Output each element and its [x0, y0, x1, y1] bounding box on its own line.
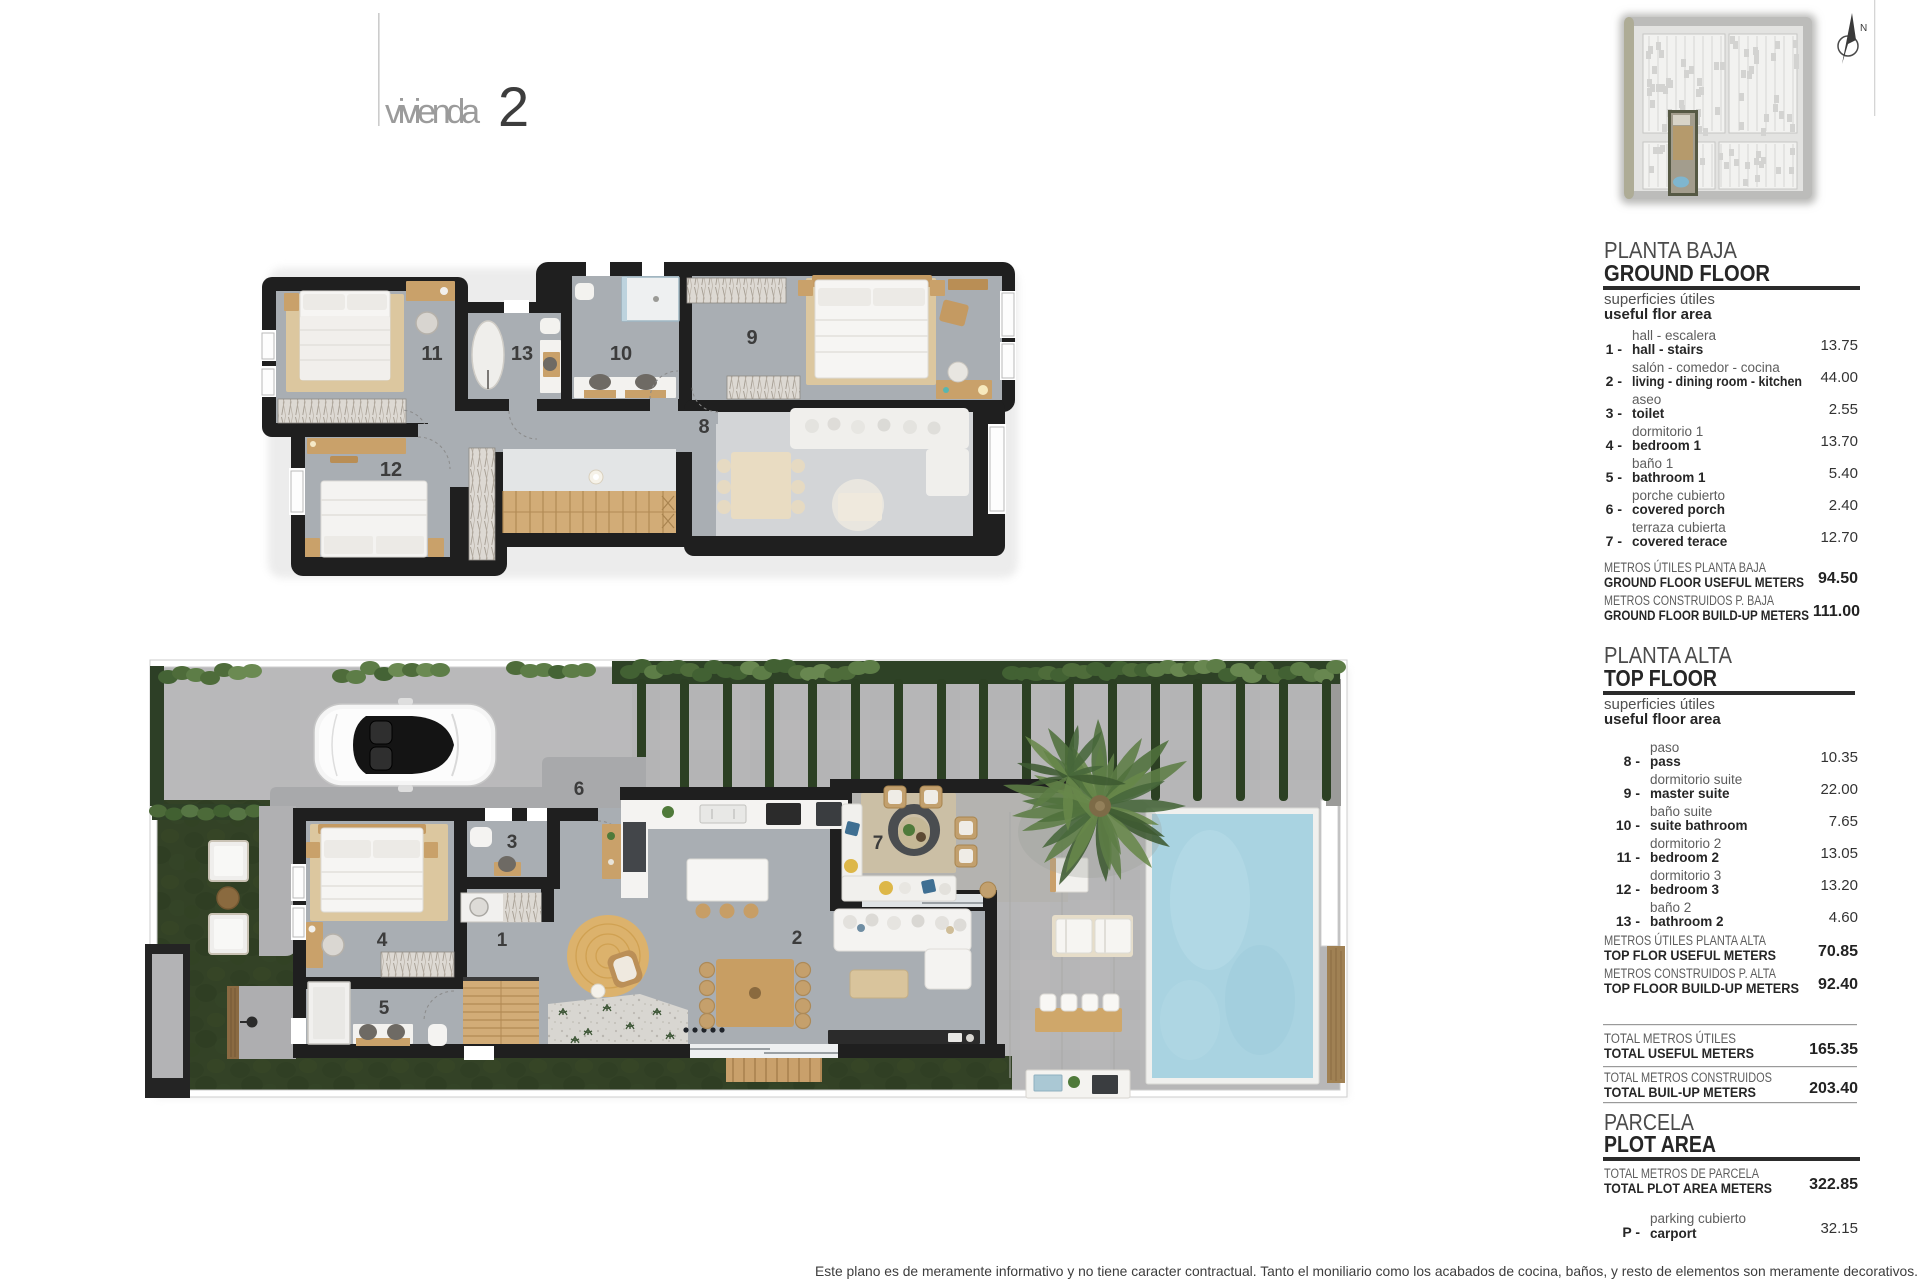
svg-text:5 -: 5 -	[1606, 469, 1623, 485]
svg-text:13.05: 13.05	[1820, 845, 1858, 862]
svg-text:METROS CONSTRUIDOS P. BAJA: METROS CONSTRUIDOS P. BAJA	[1604, 593, 1774, 608]
svg-text:dormitorio 1: dormitorio 1	[1632, 424, 1703, 439]
svg-text:92.40: 92.40	[1818, 976, 1858, 993]
svg-text:METROS ÚTILES PLANTA BAJA: METROS ÚTILES PLANTA BAJA	[1604, 560, 1766, 575]
svg-text:165.35: 165.35	[1809, 1041, 1858, 1058]
svg-text:10: 10	[610, 343, 632, 365]
svg-text:TOTAL BUIL-UP METERS: TOTAL BUIL-UP METERS	[1604, 1085, 1756, 1100]
svg-text:94.50: 94.50	[1818, 570, 1858, 587]
svg-text:13.20: 13.20	[1820, 877, 1858, 894]
svg-text:dormitorio suite: dormitorio suite	[1650, 772, 1742, 787]
svg-text:44.00: 44.00	[1820, 369, 1858, 386]
svg-text:6: 6	[574, 779, 585, 800]
svg-text:TOTAL PLOT AREA METERS: TOTAL PLOT AREA METERS	[1604, 1181, 1772, 1196]
svg-text:terraza cubierta: terraza cubierta	[1632, 520, 1726, 535]
svg-text:useful floor area: useful floor area	[1604, 711, 1721, 728]
svg-text:1: 1	[497, 930, 508, 951]
svg-text:TOTAL METROS DE PARCELA: TOTAL METROS DE PARCELA	[1604, 1166, 1759, 1181]
svg-text:12.70: 12.70	[1820, 529, 1858, 546]
svg-text:13.70: 13.70	[1820, 433, 1858, 450]
svg-text:baño 1: baño 1	[1632, 456, 1673, 471]
svg-text:living - dining room - kitchen: living - dining room - kitchen	[1632, 374, 1802, 389]
svg-text:4.60: 4.60	[1829, 909, 1858, 926]
svg-text:2: 2	[498, 75, 529, 138]
svg-text:bedroom 1: bedroom 1	[1632, 438, 1702, 453]
svg-text:baño 2: baño 2	[1650, 900, 1691, 915]
svg-text:13 -: 13 -	[1616, 913, 1640, 929]
svg-text:TOTAL METROS CONSTRUIDOS: TOTAL METROS CONSTRUIDOS	[1604, 1070, 1772, 1085]
svg-text:toilet: toilet	[1632, 406, 1665, 421]
svg-text:2: 2	[792, 928, 803, 949]
svg-text:TOP FLOOR: TOP FLOOR	[1604, 665, 1717, 691]
svg-text:8 -: 8 -	[1624, 753, 1641, 769]
svg-text:22.00: 22.00	[1820, 781, 1858, 798]
svg-text:2.55: 2.55	[1829, 401, 1858, 418]
svg-text:6 -: 6 -	[1606, 501, 1623, 517]
svg-text:9 -: 9 -	[1624, 785, 1641, 801]
svg-text:GROUND FLOOR USEFUL METERS: GROUND FLOOR USEFUL METERS	[1604, 575, 1804, 590]
svg-text:7.65: 7.65	[1829, 813, 1858, 830]
svg-text:7 -: 7 -	[1606, 533, 1623, 549]
svg-text:11 -: 11 -	[1617, 849, 1641, 865]
svg-text:parking cubierto: parking cubierto	[1650, 1211, 1746, 1226]
svg-text:paso: paso	[1650, 740, 1679, 755]
svg-text:master suite: master suite	[1650, 786, 1730, 801]
svg-text:bedroom 3: bedroom 3	[1650, 882, 1720, 897]
svg-text:dormitorio 2: dormitorio 2	[1650, 836, 1721, 851]
svg-text:TOP FLOR USEFUL METERS: TOP FLOR USEFUL METERS	[1604, 948, 1776, 963]
svg-text:12 -: 12 -	[1616, 881, 1640, 897]
svg-text:7: 7	[873, 833, 884, 854]
svg-text:METROS ÚTILES PLANTA ALTA: METROS ÚTILES PLANTA ALTA	[1604, 933, 1766, 948]
svg-text:carport: carport	[1650, 1226, 1697, 1241]
svg-text:8: 8	[698, 416, 709, 438]
svg-text:bathroom 1: bathroom 1	[1632, 470, 1706, 485]
svg-text:111.00: 111.00	[1813, 603, 1860, 620]
svg-text:PLOT AREA: PLOT AREA	[1604, 1131, 1716, 1157]
svg-text:salón - comedor - cocina: salón - comedor - cocina	[1632, 360, 1780, 375]
svg-text:TOP FLOOR BUILD-UP METERS: TOP FLOOR BUILD-UP METERS	[1604, 981, 1799, 996]
svg-text:5.40: 5.40	[1829, 465, 1858, 482]
svg-text:dormitorio 3: dormitorio 3	[1650, 868, 1721, 883]
svg-text:baño suite: baño suite	[1650, 804, 1712, 819]
svg-text:10.35: 10.35	[1820, 749, 1858, 766]
svg-text:bathroom 2: bathroom 2	[1650, 914, 1724, 929]
svg-text:3: 3	[507, 832, 518, 853]
svg-text:2 -: 2 -	[1606, 373, 1623, 389]
svg-text:1 -: 1 -	[1606, 341, 1623, 357]
svg-text:bedroom 2: bedroom 2	[1650, 850, 1719, 865]
svg-text:pass: pass	[1650, 754, 1681, 769]
svg-text:70.85: 70.85	[1818, 943, 1858, 960]
svg-text:covered porch: covered porch	[1632, 502, 1725, 517]
svg-text:11: 11	[421, 343, 442, 365]
svg-text:12: 12	[380, 459, 402, 481]
svg-text:10 -: 10 -	[1616, 817, 1640, 833]
svg-text:GROUND FLOOR: GROUND FLOOR	[1604, 260, 1770, 286]
svg-text:GROUND FLOOR BUILD-UP METERS: GROUND FLOOR BUILD-UP METERS	[1604, 608, 1809, 623]
svg-text:2.40: 2.40	[1829, 497, 1858, 514]
svg-text:TOTAL USEFUL METERS: TOTAL USEFUL METERS	[1604, 1046, 1754, 1061]
svg-text:METROS CONSTRUIDOS P. ALTA: METROS CONSTRUIDOS P. ALTA	[1604, 966, 1776, 981]
svg-text:4 -: 4 -	[1606, 437, 1623, 453]
svg-text:9: 9	[746, 327, 757, 349]
svg-text:hall - stairs: hall - stairs	[1632, 342, 1703, 357]
svg-text:useful flor area: useful flor area	[1604, 306, 1712, 323]
svg-text:covered terace: covered terace	[1632, 534, 1728, 549]
svg-text:vivienda: vivienda	[385, 93, 480, 131]
svg-text:Este plano es de meramente inf: Este plano es de meramente informativo y…	[815, 1263, 1918, 1279]
svg-text:TOTAL METROS ÚTILES: TOTAL METROS ÚTILES	[1604, 1031, 1736, 1046]
svg-text:322.85: 322.85	[1809, 1176, 1858, 1193]
svg-text:porche cubierto: porche cubierto	[1632, 488, 1725, 503]
svg-text:hall - escalera: hall - escalera	[1632, 328, 1717, 343]
svg-text:5: 5	[379, 998, 390, 1019]
svg-text:4: 4	[377, 930, 388, 951]
svg-text:N: N	[1860, 23, 1867, 34]
svg-text:13: 13	[511, 343, 533, 365]
svg-text:32.15: 32.15	[1820, 1220, 1858, 1237]
svg-text:3 -: 3 -	[1606, 405, 1623, 421]
svg-text:suite bathroom: suite bathroom	[1650, 818, 1748, 833]
svg-text:aseo: aseo	[1632, 392, 1661, 407]
svg-text:P -: P -	[1622, 1224, 1640, 1240]
svg-text:203.40: 203.40	[1809, 1080, 1858, 1097]
svg-text:13.75: 13.75	[1820, 337, 1858, 354]
